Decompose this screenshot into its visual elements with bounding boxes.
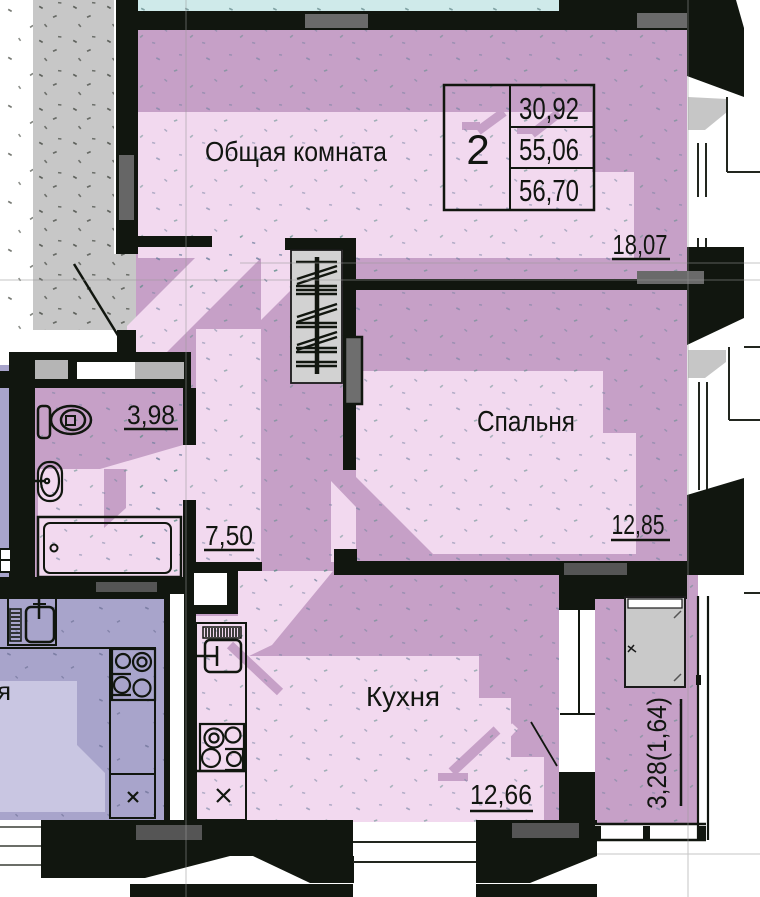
svg-text:18,07: 18,07 [613,229,668,260]
svg-text:56,70: 56,70 [519,173,579,208]
svg-text:Спальня: Спальня [477,406,575,438]
svg-text:Общая комната: Общая комната [205,136,387,167]
svg-text:3,98: 3,98 [127,400,175,430]
svg-text:12,66: 12,66 [470,779,532,810]
svg-text:Кухня: Кухня [366,681,440,712]
svg-text:7,50: 7,50 [205,520,253,551]
svg-text:55,06: 55,06 [519,132,579,167]
svg-text:я: я [0,676,11,706]
svg-text:30,92: 30,92 [519,91,579,126]
svg-text:2: 2 [466,126,489,173]
svg-text:3,28(1,64): 3,28(1,64) [642,697,672,809]
svg-text:12,85: 12,85 [612,509,665,540]
